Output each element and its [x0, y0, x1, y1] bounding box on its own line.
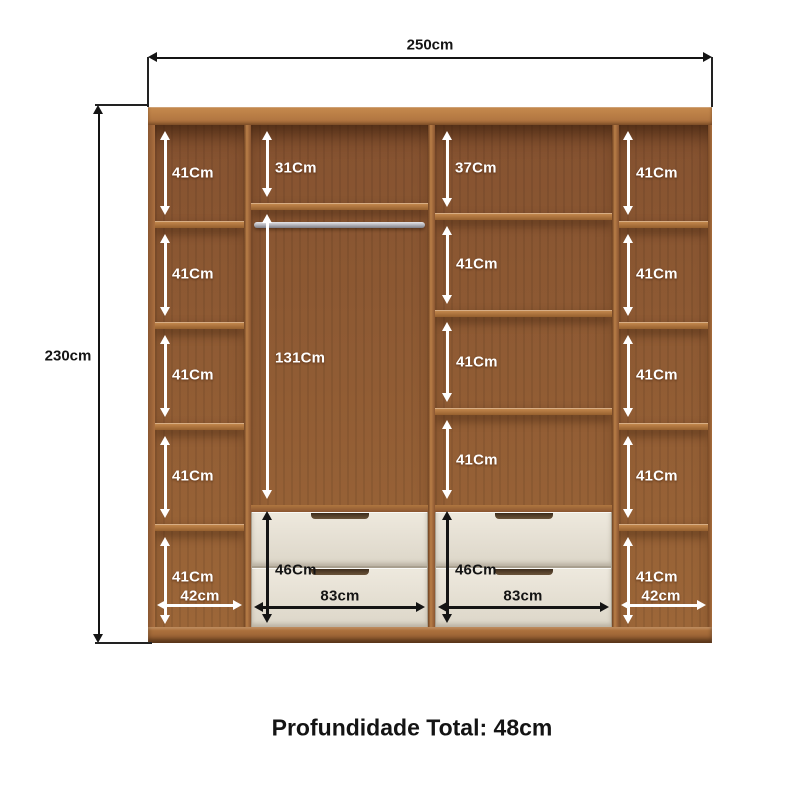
total-width-arrow	[148, 52, 712, 63]
shelf-height-label: 41Cm	[636, 367, 678, 384]
shelf	[619, 221, 708, 228]
shelf-height-arrow	[623, 335, 634, 417]
drawer-height-label: 46Cm	[455, 562, 497, 579]
shelf	[155, 423, 244, 430]
shelf-height-arrow	[160, 335, 171, 417]
shelf	[155, 221, 244, 228]
top-shelf-height-label: 31Cm	[275, 160, 317, 177]
hanging-rod	[254, 222, 425, 228]
left-side-panel	[148, 125, 155, 627]
top-shelf-height-arrow	[262, 131, 273, 197]
drawer-unit-top	[435, 505, 612, 512]
drawer[interactable]	[252, 512, 427, 566]
wardrobe-top-panel	[148, 107, 712, 125]
drawer-height-label: 46Cm	[275, 562, 317, 579]
shelf-height-arrow	[160, 234, 171, 316]
extension-line	[95, 642, 152, 644]
drawer-handle[interactable]	[311, 513, 369, 519]
shelf	[619, 423, 708, 430]
wardrobe-dimension-diagram: 250cm 230cm 41Cm 41Cm 41Cm 41Cm 41Cm 42c…	[0, 0, 800, 800]
shelf-height-arrow	[442, 420, 453, 499]
shelf	[435, 408, 612, 415]
shelf-height-arrow	[623, 436, 634, 518]
shelf	[435, 310, 612, 317]
shelf	[619, 524, 708, 531]
shelf-height-arrow	[623, 234, 634, 316]
extension-line	[147, 57, 149, 107]
shelf-height-arrow	[623, 131, 634, 215]
total-height-arrow	[93, 105, 104, 643]
shelf	[619, 322, 708, 329]
column-width-arrow	[621, 600, 706, 611]
shelf-height-label: 41Cm	[172, 165, 214, 182]
middle-shelf-column	[435, 125, 612, 627]
top-shelf-height-arrow	[442, 131, 453, 207]
column-divider	[428, 125, 435, 627]
shelf-height-label: 41Cm	[636, 165, 678, 182]
shelf	[435, 213, 612, 220]
right-side-panel	[708, 125, 712, 627]
shelf-height-label: 41Cm	[172, 468, 214, 485]
hanging-column	[251, 125, 428, 627]
column-width-arrow	[157, 600, 242, 611]
shelf-height-label: 41Cm	[172, 569, 214, 586]
shelf-height-label: 41Cm	[456, 256, 498, 273]
column-divider	[612, 125, 619, 627]
shelf	[155, 524, 244, 531]
shelf-height-label: 41Cm	[456, 354, 498, 371]
shelf-height-label: 41Cm	[172, 266, 214, 283]
shelf-height-label: 41Cm	[636, 569, 678, 586]
total-height-label: 230cm	[45, 348, 92, 365]
shelf-height-arrow	[442, 226, 453, 304]
shelf	[251, 203, 428, 210]
drawer-unit-top	[251, 505, 428, 512]
section-width-arrow	[438, 602, 609, 613]
column-divider	[244, 125, 251, 627]
top-shelf-height-label: 37Cm	[455, 160, 497, 177]
shelf-height-label: 41Cm	[636, 468, 678, 485]
drawer[interactable]	[436, 512, 611, 566]
hanging-height-label: 131Cm	[275, 350, 325, 367]
total-width-label: 250cm	[407, 37, 454, 54]
hanging-height-arrow	[262, 214, 273, 499]
shelf-height-label: 41Cm	[636, 266, 678, 283]
shelf-height-label: 41Cm	[456, 452, 498, 469]
drawer-handle[interactable]	[495, 569, 553, 575]
extension-line	[711, 57, 713, 107]
drawer-handle[interactable]	[311, 569, 369, 575]
wardrobe-plinth	[148, 627, 712, 643]
shelf-height-arrow	[160, 436, 171, 518]
shelf-height-arrow	[442, 322, 453, 402]
shelf-height-arrow	[160, 131, 171, 215]
drawer-handle[interactable]	[495, 513, 553, 519]
total-depth-label: Profundidade Total: 48cm	[272, 715, 553, 742]
shelf	[155, 322, 244, 329]
section-width-arrow	[254, 602, 425, 613]
extension-line	[95, 104, 148, 106]
shelf-height-label: 41Cm	[172, 367, 214, 384]
